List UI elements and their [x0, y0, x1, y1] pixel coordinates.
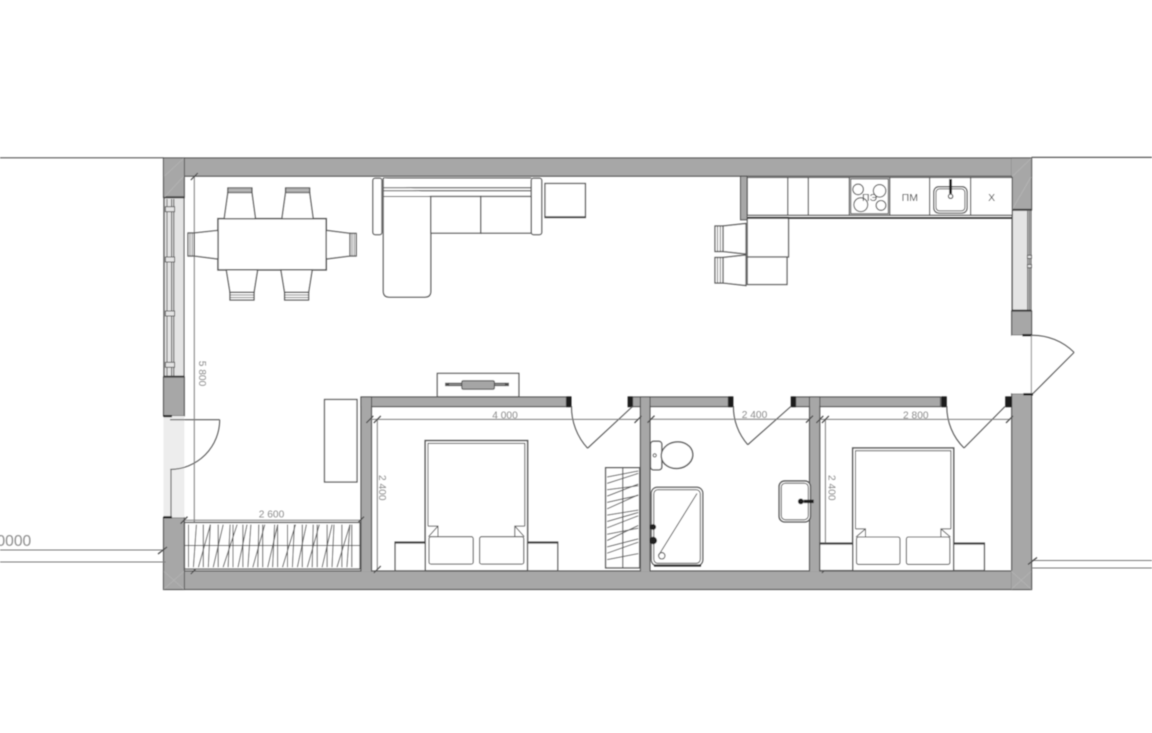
- svg-text:2 600: 2 600: [259, 510, 285, 521]
- svg-text:Х: Х: [988, 192, 995, 204]
- svg-text:ПМ: ПМ: [902, 192, 918, 204]
- svg-text:2 400: 2 400: [826, 475, 837, 501]
- svg-text:0000: 0000: [0, 533, 32, 550]
- svg-text:5 800: 5 800: [196, 361, 207, 387]
- svg-text:2 400: 2 400: [742, 410, 768, 421]
- svg-text:2 400: 2 400: [376, 475, 387, 501]
- svg-text:2 800: 2 800: [903, 410, 929, 421]
- svg-text:4 000: 4 000: [492, 410, 518, 421]
- svg-text:ПЭ: ПЭ: [862, 192, 878, 204]
